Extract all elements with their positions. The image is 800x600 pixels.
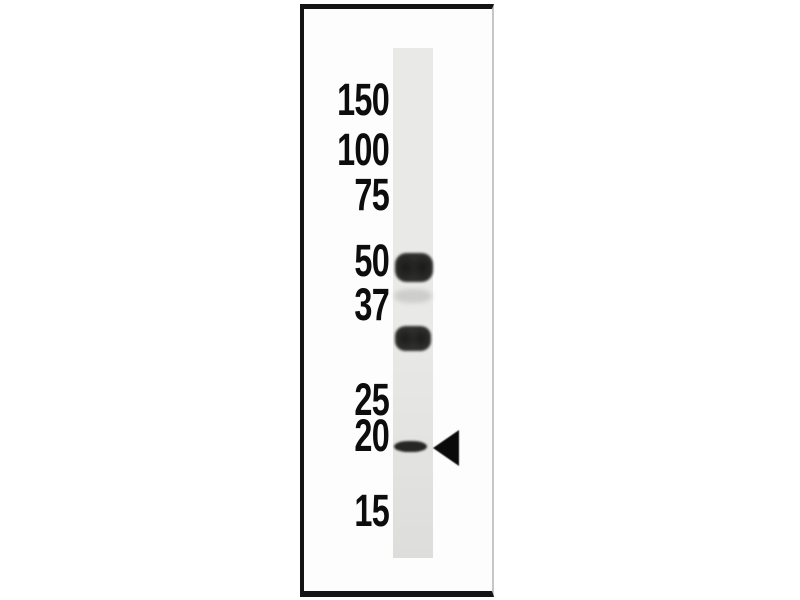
- band-40kda-faint: [394, 289, 432, 303]
- band-50kda: [395, 253, 433, 282]
- mw-label-100: 100: [281, 127, 389, 172]
- mw-label-20: 20: [281, 413, 389, 458]
- mw-label-15: 15: [281, 488, 389, 533]
- gel-lane: [393, 48, 433, 558]
- mw-label-150: 150: [281, 77, 389, 122]
- band-pointer-arrowhead-icon: [433, 430, 459, 466]
- mw-label-75: 75: [281, 172, 389, 217]
- mw-label-37: 37: [281, 282, 389, 327]
- band-19kda-target: [394, 441, 427, 452]
- mw-label-50: 50: [281, 238, 389, 283]
- band-33kda: [395, 326, 431, 351]
